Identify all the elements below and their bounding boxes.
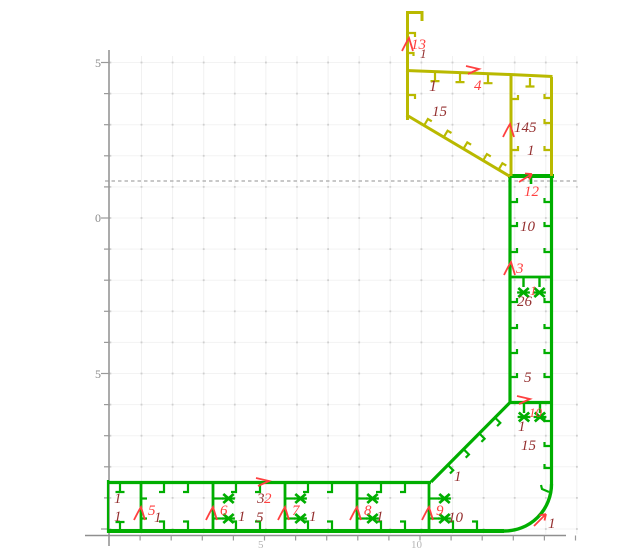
svg-text:1: 1 [527,143,535,159]
svg-text:4: 4 [474,78,482,94]
svg-text:1: 1 [154,510,162,526]
svg-text:15: 15 [432,104,448,120]
svg-text:10: 10 [529,405,543,420]
svg-text:10: 10 [448,510,464,526]
svg-text:10: 10 [411,539,423,550]
svg-text:2: 2 [264,491,272,507]
svg-text:26: 26 [517,294,533,310]
svg-text:5: 5 [258,539,264,550]
svg-text:1: 1 [114,491,122,507]
svg-text:1: 1 [454,469,462,485]
svg-text:1: 1 [420,46,427,61]
svg-text:15: 15 [521,438,537,454]
svg-text:1: 1 [114,509,122,525]
svg-text:9: 9 [436,503,444,519]
svg-text:1: 1 [548,516,556,532]
svg-text:0: 0 [95,211,101,225]
svg-text:1: 1 [309,509,317,525]
svg-text:6: 6 [220,503,228,519]
svg-text:1: 1 [376,509,384,525]
svg-text:5: 5 [524,370,532,386]
svg-text:1: 1 [518,419,526,435]
svg-text:10: 10 [520,219,536,235]
svg-text:1: 1 [429,78,437,95]
svg-text:5: 5 [95,367,101,381]
svg-text:145: 145 [514,120,537,136]
svg-text:5: 5 [256,510,264,526]
svg-text:5: 5 [95,56,101,70]
svg-text:1: 1 [238,509,246,525]
svg-text:3: 3 [515,261,524,277]
svg-text:8: 8 [364,503,372,519]
svg-text:12: 12 [524,184,540,200]
